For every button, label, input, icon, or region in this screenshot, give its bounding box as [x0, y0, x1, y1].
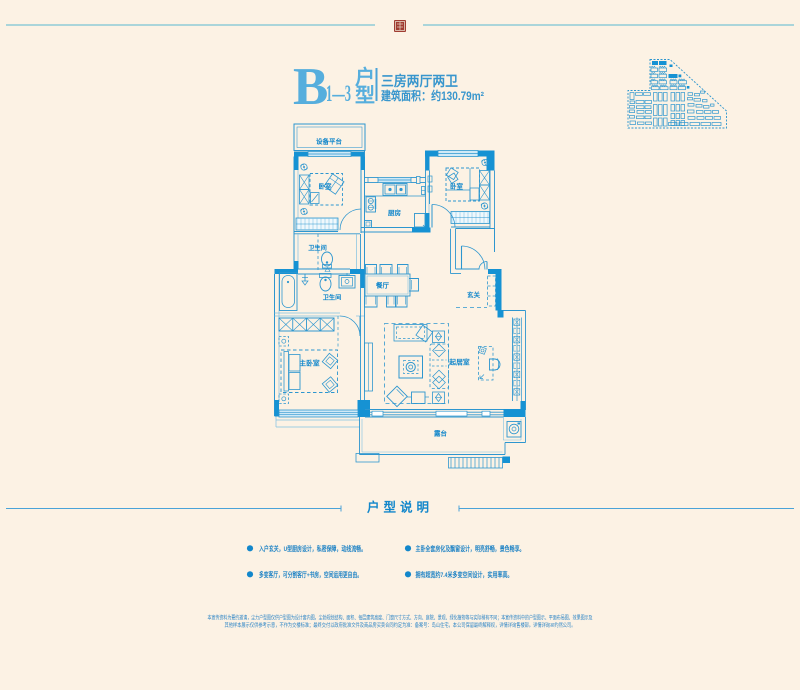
svg-text:卫生间: 卫生间 [323, 294, 342, 302]
svg-text:本宣传资料为要约邀请，尘力户型图仅供户型图为设计套内图，尘勃: 本宣传资料为要约邀请，尘力户型图仅供户型图为设计套内图，尘勃规划结构、面积、每层… [208, 613, 593, 621]
svg-text:三房两厅两卫: 三房两厅两卫 [381, 73, 458, 89]
svg-text:型: 型 [355, 84, 375, 107]
svg-text:建筑面积：约130.79m²: 建筑面积：约130.79m² [380, 88, 484, 103]
svg-text:拥有超宽约7.4米多变空间设计，实用率高。: 拥有超宽约7.4米多变空间设计，实用率高。 [416, 570, 513, 579]
svg-text:厨房: 厨房 [388, 208, 402, 217]
svg-text:多变客厅，可分割客厅+书房，空间运用更自由。: 多变客厅，可分割客厅+书房，空间运用更自由。 [259, 570, 362, 579]
svg-text:主卧全套房化及飘窗设计，明亮舒畅，景色畅享。: 主卧全套房化及飘窗设计，明亮舒畅，景色畅享。 [416, 544, 525, 553]
svg-text:B: B [293, 58, 328, 116]
svg-text:起居室: 起居室 [448, 358, 470, 367]
svg-text:户型说明: 户型说明 [367, 500, 433, 515]
svg-text:卧室: 卧室 [319, 182, 333, 191]
svg-text:卧室: 卧室 [450, 182, 464, 191]
svg-text:玄关: 玄关 [467, 290, 481, 299]
svg-text:餐厅: 餐厅 [375, 281, 390, 290]
svg-text:其他样本展示仅供参考示意，不作为交楼标准；最终交付以政府批准: 其他样本展示仅供参考示意，不作为交楼标准；最终交付以政府批准文件及商品房买卖合同… [225, 621, 576, 629]
svg-text:卫生间: 卫生间 [308, 244, 327, 252]
svg-text:设备平台: 设备平台 [316, 137, 343, 146]
svg-text:1—3: 1—3 [326, 81, 351, 106]
svg-text:露台: 露台 [434, 429, 448, 438]
svg-text:入户玄关，U型厨房设计，私密保障，动线流畅。: 入户玄关，U型厨房设计，私密保障，动线流畅。 [259, 544, 366, 553]
svg-text:主卧室: 主卧室 [299, 359, 320, 368]
